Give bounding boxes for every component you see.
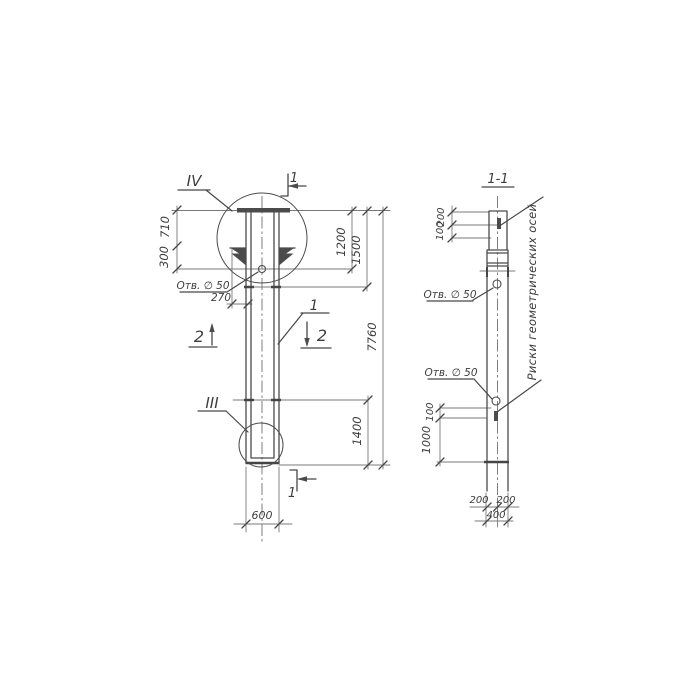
- detail-iv-leader: [178, 190, 232, 211]
- pile-cap-plate: [237, 208, 290, 213]
- drawing-sheet: IV III 1 1 2 2 1 Отв. ∅ 50 270 710 300 1…: [0, 0, 700, 700]
- section1-bottom-label: 1: [288, 486, 296, 501]
- dim-300: 300: [157, 246, 171, 268]
- dim-200-right: 200: [496, 495, 515, 506]
- dim-100-top: 100: [435, 221, 446, 240]
- section2-left-arrow: [209, 323, 214, 332]
- section-hole-lower-leader: [428, 379, 492, 399]
- section-hole-upper: [493, 280, 501, 288]
- dim-1400: 1400: [350, 416, 364, 445]
- dim-400: 400: [486, 510, 505, 521]
- section-hole-label-lower: Отв. ∅ 50: [424, 367, 477, 379]
- dim-1000: 1000: [420, 426, 433, 454]
- section-1-1-view: 1-1 200 100 Отв. ∅ 50 Отв. ∅ 50 100 1000…: [420, 172, 543, 527]
- dim-270: 270: [211, 292, 231, 304]
- axis-mark-top: [497, 218, 501, 229]
- detail-bottom-label: III: [205, 394, 219, 412]
- section-hole-label-upper: Отв. ∅ 50: [423, 289, 476, 301]
- detail-top-label: IV: [187, 172, 203, 190]
- section1-bottom-arrow: [297, 476, 307, 482]
- technical-drawing: IV III 1 1 2 2 1 Отв. ∅ 50 270 710 300 1…: [0, 0, 700, 700]
- dim-1200: 1200: [334, 227, 348, 256]
- elevation-view: IV III 1 1 2 2 1 Отв. ∅ 50 270 710 300 1…: [157, 171, 390, 543]
- dim-7760: 7760: [365, 322, 379, 351]
- section2-right-label: 2: [317, 326, 327, 345]
- dim-1500: 1500: [349, 235, 363, 264]
- section2-left-label: 2: [194, 327, 204, 346]
- pile-flange-right: [279, 248, 295, 266]
- detail-iii-leader: [198, 411, 248, 432]
- section1-top-label: 1: [290, 171, 298, 186]
- section-hole-lower: [492, 397, 500, 405]
- dim-100-side: 100: [425, 402, 436, 421]
- dim-710: 710: [158, 216, 172, 238]
- dim-600: 600: [252, 509, 273, 522]
- section2-right-arrow: [304, 338, 309, 347]
- axes-note: Риски геометрических осей: [525, 203, 539, 380]
- section-title: 1-1: [487, 172, 508, 187]
- dim-200-left: 200: [469, 495, 488, 506]
- hole-label: Отв. ∅ 50: [176, 280, 229, 292]
- axis-mark-bottom: [494, 411, 498, 421]
- part-label: 1: [310, 298, 319, 314]
